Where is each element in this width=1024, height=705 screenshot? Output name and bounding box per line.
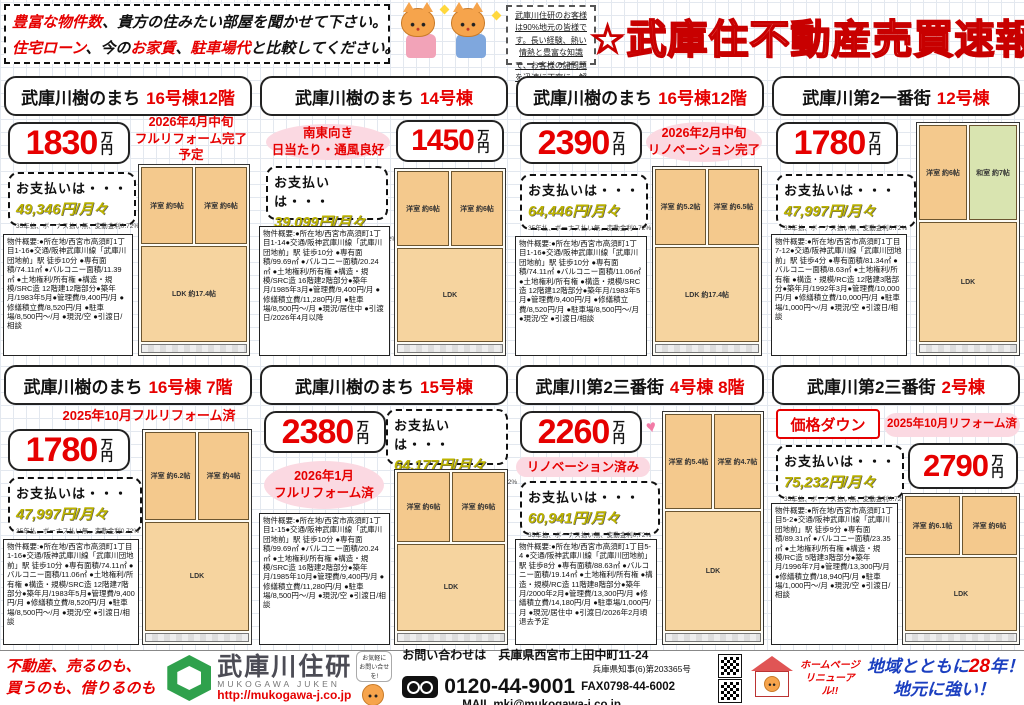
price-unit: 万円 [991, 454, 1003, 478]
price-unit: 万円 [868, 131, 880, 155]
property-overview: 物件概要:●所在地/西宮市高須町1丁目7-12●交通/阪神武庫川線「武庫川団地前… [771, 234, 907, 356]
price-unit: 万円 [100, 438, 112, 462]
floorplan-rooms: 洋室 約5帖洋室 約6帖LDK 約17.4帖 [141, 167, 247, 342]
floorplan-rooms: 洋室 約6帖和室 約7帖LDK [919, 125, 1017, 342]
qr-codes [719, 655, 741, 702]
property-overview: 物件概要:●所在地/西宮市高須町1丁目1-15●交通/阪神武庫川線「武庫川団地前… [259, 513, 390, 645]
hp-line: リニューアル!! [797, 672, 863, 698]
price-box: 1780 万円 [776, 122, 898, 164]
slogan-line: 地域とともに28年！ [867, 654, 1024, 680]
promo-highlight: 住宅ローン [12, 40, 85, 57]
promo-highlight: 豊富な物件数 [12, 14, 102, 31]
promo-text: 、 [175, 40, 190, 57]
payment-note: 35年払、ボーナス払い無、変動金利0.72% [784, 493, 896, 503]
payment-box: お支払いは・・・ 75,232円/月々 35年払、ボーナス払い無、変動金利0.7… [776, 445, 904, 499]
balcony-strip [905, 633, 1017, 642]
floorplan: 洋室 約5帖洋室 約6帖LDK 約17.4帖 [138, 164, 250, 356]
floorplan: 洋室 約5.2帖洋室 約6.5帖LDK 約17.4帖 [652, 166, 762, 356]
room-label: 洋室 約6帖 [451, 171, 503, 246]
property-card: 武庫川第2三番街 4号棟 8階 2260 万円 リノベーション済み ♥ ♥ お支… [512, 361, 768, 650]
payment-box: お支払いは・・・ 47,997円/月々 35年払、ボーナス払い無、変動金利0.7… [8, 477, 142, 533]
slogan-line: 不動産、売るのも、 [6, 656, 161, 679]
footer-cat-mascot: お気軽に お問い合せを! [356, 651, 390, 705]
property-overview: 物件概要:●所在地/西宮市高須町1丁目5-4 ●交通/阪神武庫川線「武庫川団地前… [515, 539, 657, 645]
payment-note: 35年払、ボーナス払い無、変動金利0.72% [784, 222, 908, 232]
payment-label: お支払いは・・・ [784, 451, 896, 470]
property-overview: 物件概要:●所在地/西宮市高須町1丁目1-16●交通/阪神武庫川線「武庫川団地前… [3, 539, 139, 645]
promo-note: 2026年4月中旬 フルリフォーム完了予定 [132, 120, 250, 158]
price-unit: 万円 [612, 131, 624, 155]
price-box: 2260 万円 [520, 411, 642, 453]
freedial-phone-icon [402, 676, 438, 698]
promo-highlight: 駐車場代 [190, 40, 250, 57]
building-name: 武庫川樹のまち [295, 373, 414, 398]
payment-amount: 75,232円/月々 [784, 471, 896, 492]
property-overview: 物件概要:●所在地/西宮市高須町1丁目5-2●交通/阪神武庫川線「武庫川団地前」… [771, 503, 898, 645]
price-box: 2390 万円 [520, 122, 642, 164]
slogan-number: 28 [969, 656, 990, 677]
price-value: 1780 [26, 431, 98, 470]
property-card: 武庫川樹のまち 16号棟 7階 1780 万円 2025年10月フルリフォーム済… [0, 361, 256, 650]
building-name: 武庫川樹のまち [295, 84, 414, 109]
payment-amount: 47,997円/月々 [16, 503, 134, 524]
payment-label: お支払いは・・・ [528, 180, 640, 199]
company-url: http://mukogawa-j.co.jp [217, 689, 352, 702]
property-title-bar: 武庫川第2三番街 4号棟 8階 [516, 365, 764, 405]
payment-note: 35年払、ボーナス払い無、変動金利0.72% [16, 220, 128, 230]
property-overview: 物件概要:●所在地/西宮市高須町1丁目1-14●交通/阪神武庫川線「武庫川団地前… [259, 226, 390, 356]
footer-slogan-right: 地域とともに28年！ 地元に強い！ [863, 654, 1024, 703]
property-card: 武庫川第2一番街 12号棟 1780 万円 お支払いは・・・ 47,997円/月… [768, 72, 1024, 361]
payment-box: お支払いは・・・ 64,446円/月々 35年払、ボーナス払い無、変動金利0.7… [520, 174, 648, 230]
floorplan-rooms: 洋室 約6.1帖洋室 約6帖LDK [905, 496, 1017, 631]
price-value: 2260 [538, 413, 610, 452]
balcony-strip [655, 344, 759, 353]
sparkle-icon [492, 11, 502, 21]
building-name: 武庫川樹のまち [21, 84, 140, 109]
payment-label: お支払いは・・・ [274, 172, 380, 210]
payment-amount: 60,941円/月々 [528, 507, 652, 528]
price-value: 1780 [794, 124, 866, 163]
payment-amount: 47,997円/月々 [784, 200, 908, 221]
promo-line-2: 住宅ローン、今のお家賃、駐車場代と比較してください。 [12, 36, 382, 62]
roof-icon [751, 656, 793, 671]
payment-note: 35年払、ボーナス払い無、変動金利0.72% [528, 222, 640, 232]
room-label: 洋室 約6.1帖 [905, 496, 960, 555]
homepage-renewal-note: ホームページ リニューアル!! [797, 659, 863, 698]
price-down-badge: 価格ダウン [776, 409, 880, 439]
room-label: 洋室 約6.2帖 [145, 432, 196, 520]
payment-label: お支払いは・・・ [394, 415, 500, 453]
payment-amount: 64,446円/月々 [528, 200, 640, 221]
property-title-bar: 武庫川樹のまち 16号棟 7階 [4, 365, 252, 405]
property-title-bar: 武庫川第2三番街 2号棟 [772, 365, 1020, 405]
promo-note: 2025年10月フルリフォーム済 [46, 406, 252, 426]
contact-label: お問い合わせは [402, 648, 486, 662]
balcony-strip [145, 633, 249, 642]
room-label: LDK 約17.4帖 [141, 246, 247, 342]
room-label: 洋室 約6帖 [452, 472, 505, 542]
fax-number: FAX0798-44-6002 [581, 681, 675, 693]
building-name: 武庫川樹のまち [23, 373, 142, 398]
property-title-bar: 武庫川第2一番街 12号棟 [772, 76, 1020, 116]
property-card: 武庫川第2三番街 2号棟 価格ダウン 2790 万円 2025年10月リフォーム… [768, 361, 1024, 650]
hp-line: ホームページ [797, 659, 863, 672]
floorplan-rooms: 洋室 約5.4帖洋室 約4.7帖LDK [665, 414, 761, 631]
property-title-bar: 武庫川樹のまち 16号棟12階 [516, 76, 764, 116]
cat-mascot-blue [451, 8, 491, 66]
price-box: 1780 万円 [8, 429, 130, 471]
speech-bubble: お気軽に お問い合せを! [356, 651, 392, 682]
unit-label: 16号棟12階 [658, 84, 747, 109]
payment-label: お支払いは・・・ [528, 487, 652, 506]
email-address: MAIL mkj@mukogawa-j.co.jp [402, 699, 713, 705]
unit-label: 16号棟 7階 [148, 373, 232, 398]
room-label: LDK [397, 248, 503, 342]
flyer-title: ☆武庫住不動産売買速報 [606, 6, 1020, 66]
floorplan: 洋室 約6帖和室 約7帖LDK [916, 122, 1020, 356]
cat-face-icon [764, 676, 780, 692]
floorplan-rooms: 洋室 約5.2帖洋室 約6.5帖LDK 約17.4帖 [655, 169, 759, 342]
price-value: 1450 [411, 124, 474, 158]
price-value: 1830 [26, 124, 98, 163]
cat-mascot-pink [401, 8, 441, 66]
slogan-text: 地域とともに [867, 657, 969, 676]
license-number: 兵庫県知事(6)第203365号 [402, 663, 713, 675]
balcony-strip [397, 633, 505, 642]
payment-label: お支払いは・・・ [16, 178, 128, 197]
unit-label: 15号棟 [420, 373, 473, 398]
payment-box: お支払いは・・・ 49,346円/月々 35年払、ボーナス払い無、変動金利0.7… [8, 172, 136, 226]
room-label: LDK [905, 557, 1017, 631]
payment-label: お支払いは・・・ [16, 483, 134, 502]
company-block: 武庫川住研 MUKOGAWA JUKEN http://mukogawa-j.c… [217, 654, 352, 702]
promo-text: 、今の [85, 40, 130, 57]
qr-code-icon [719, 680, 741, 702]
room-label: LDK [145, 522, 249, 631]
price-value: 2790 [923, 448, 988, 484]
balcony-strip [665, 633, 761, 642]
room-label: 洋室 約6帖 [962, 496, 1017, 555]
property-card: 武庫川樹のまち 15号棟 2380 万円 2026年1月 フルリフォーム済 お支… [256, 361, 512, 650]
room-label: 洋室 約6帖 [397, 171, 449, 246]
floorplan: 洋室 約5.4帖洋室 約4.7帖LDK [662, 411, 764, 645]
price-box: 1450 万円 [396, 120, 504, 162]
payment-note: 35年払、ボーナス払い無、変動金利0.72% [528, 529, 652, 539]
contact-address-line: お問い合わせは 兵庫県西宮市上田中町11-24 [402, 646, 713, 663]
promo-note: リノベーション済み [516, 457, 650, 477]
room-label: 洋室 約5帖 [141, 167, 193, 244]
property-title-bar: 武庫川樹のまち 14号棟 [260, 76, 508, 116]
room-label: 洋室 約6.5帖 [708, 169, 759, 245]
unit-label: 16号棟12階 [146, 84, 235, 109]
payment-label: お支払いは・・・ [784, 180, 908, 199]
building-name: 武庫川第2三番街 [807, 373, 935, 398]
contact-block: お問い合わせは 兵庫県西宮市上田中町11-24 兵庫県知事(6)第203365号… [394, 646, 713, 705]
company-name: 武庫川住研 [217, 654, 352, 680]
room-label: LDK [397, 544, 505, 631]
price-unit: 万円 [612, 420, 624, 444]
room-label: 洋室 約5.4帖 [665, 414, 712, 509]
price-box: 2380 万円 [264, 411, 386, 453]
header-promo-box: 豊富な物件数、貴方の住みたい部屋を聞かせて下さい。 住宅ローン、今のお家賃、駐車… [4, 4, 390, 64]
property-overview: 物件概要:●所在地/西宮市高須町1丁目1-16●交通/阪神武庫川線「武庫川団地前… [3, 234, 133, 356]
address: 兵庫県西宮市上田中町11-24 [498, 648, 648, 662]
property-card-grid: 武庫川樹のまち 16号棟12階 1830 万円 2026年4月中旬 フルリフォー… [0, 72, 1024, 650]
footer-slogan-left: 不動産、売るのも、 買うのも、借りるのも [0, 656, 161, 701]
property-card: 武庫川樹のまち 16号棟12階 2390 万円 2026年2月中旬 リノベーショ… [512, 72, 768, 361]
property-card: 武庫川樹のまち 16号棟12階 1830 万円 2026年4月中旬 フルリフォー… [0, 72, 256, 361]
floorplan-rooms: 洋室 約6帖洋室 約6帖LDK [397, 171, 503, 342]
payment-note: 35年払、ボーナス払い無、変動金利0.72% [16, 525, 134, 535]
qr-code-icon [719, 655, 741, 677]
promo-text: 、貴方の住みたい部屋を聞かせて下さい。 [102, 14, 387, 31]
payment-box: お支払いは・・・ 47,997円/月々 35年払、ボーナス払い無、変動金利0.7… [776, 174, 916, 228]
company-logo [167, 655, 211, 701]
slogan-line: 地元に強い！ [867, 679, 1024, 702]
unit-label: 12号棟 [937, 84, 990, 109]
promo-highlight: お家賃 [130, 40, 175, 57]
phone-number: 0120-44-9001 [444, 675, 575, 699]
property-overview: 物件概要:●所在地/西宮市高須町1丁目1-16●交通/阪神武庫川線「武庫川団地前… [515, 236, 647, 356]
price-unit: 万円 [356, 420, 368, 444]
floorplan: 洋室 約6帖洋室 約6帖LDK [394, 168, 506, 356]
promo-note: 2026年2月中旬 リノベーション完了 [646, 122, 762, 162]
promo-note: 南東向き 日当たり・通風良好 [266, 124, 390, 160]
payment-box: お支払いは・・・ 60,941円/月々 35年払、ボーナス払い無、変動金利0.7… [520, 481, 660, 535]
promo-note: 2025年10月リフォーム済 [884, 413, 1020, 437]
building-name: 武庫川第2一番街 [802, 84, 930, 109]
header-notice-box: 武庫川住研のお客様は90%地元の皆様です。長い経験、熱い情熱と豊富な知識で、お客… [506, 5, 596, 65]
promo-line-1: 豊富な物件数、貴方の住みたい部屋を聞かせて下さい。 [12, 10, 382, 36]
cat-face-icon [362, 684, 384, 705]
building-name: 武庫川樹のまち [533, 84, 652, 109]
floorplan: 洋室 約6.2帖洋室 約4帖LDK [142, 429, 252, 645]
room-label: 洋室 約6帖 [195, 167, 247, 244]
room-label: LDK [919, 222, 1017, 342]
floorplan: 洋室 約6帖洋室 約6帖LDK [394, 469, 508, 645]
room-label: 和室 約7帖 [969, 125, 1017, 220]
price-unit: 万円 [100, 131, 112, 155]
phone-row: 0120-44-9001 FAX0798-44-6002 [402, 675, 713, 699]
building-name: 武庫川第2三番街 [535, 373, 663, 398]
room-label: 洋室 約6帖 [397, 472, 450, 542]
unit-label: 14号棟 [420, 84, 473, 109]
price-value: 2380 [282, 413, 354, 452]
room-label: 洋室 約6帖 [919, 125, 967, 220]
slogan-text: 年！ [990, 657, 1024, 676]
property-title-bar: 武庫川樹のまち 15号棟 [260, 365, 508, 405]
promo-note: 2026年1月 フルリフォーム済 [264, 461, 384, 509]
price-unit: 万円 [477, 129, 489, 153]
floorplan: 洋室 約6.1帖洋室 約6帖LDK [902, 493, 1020, 645]
price-value: 2390 [538, 124, 610, 163]
payment-box: お支払いは・・・ 64,177円/月々 35年払、ボーナス払い無、変動金利0.7… [386, 409, 508, 465]
flyer-page: { "header": { "promo1_red": "豊富な物件数", "p… [0, 0, 1024, 705]
payment-amount: 49,346円/月々 [16, 198, 128, 219]
room-label: 洋室 約4帖 [198, 432, 249, 520]
room-label: LDK 約17.4帖 [655, 247, 759, 342]
price-box: 2790 万円 [908, 443, 1018, 489]
property-card: 武庫川樹のまち 14号棟 1450 万円 南東向き 日当たり・通風良好 お支払い… [256, 72, 512, 361]
room-label: 洋室 約5.2帖 [655, 169, 706, 245]
payment-box: お支払いは・・・ 39,099円/月々 35年払、ボーナス払い無、変動金利0.7… [266, 166, 388, 220]
floorplan-rooms: 洋室 約6.2帖洋室 約4帖LDK [145, 432, 249, 631]
unit-label: 4号棟 8階 [670, 373, 745, 398]
footer: 不動産、売るのも、 買うのも、借りるのも 武庫川住研 MUKOGAWA JUKE… [0, 650, 1024, 705]
room-label: 洋室 約4.7帖 [714, 414, 761, 509]
slogan-line: 買うのも、借りるのも [6, 678, 161, 701]
property-title-bar: 武庫川樹のまち 16号棟12階 [4, 76, 252, 116]
house-cat-illustration [751, 656, 793, 700]
unit-label: 2号棟 [942, 373, 985, 398]
promo-text: と比較してください。 [250, 40, 399, 57]
room-label: LDK [665, 511, 761, 631]
balcony-strip [919, 344, 1017, 353]
balcony-strip [141, 344, 247, 353]
floorplan-rooms: 洋室 約6帖洋室 約6帖LDK [397, 472, 505, 631]
balcony-strip [397, 344, 503, 353]
price-box: 1830 万円 [8, 122, 130, 164]
sparkle-icon [440, 5, 450, 15]
cat-mascots-illustration [395, 4, 503, 66]
